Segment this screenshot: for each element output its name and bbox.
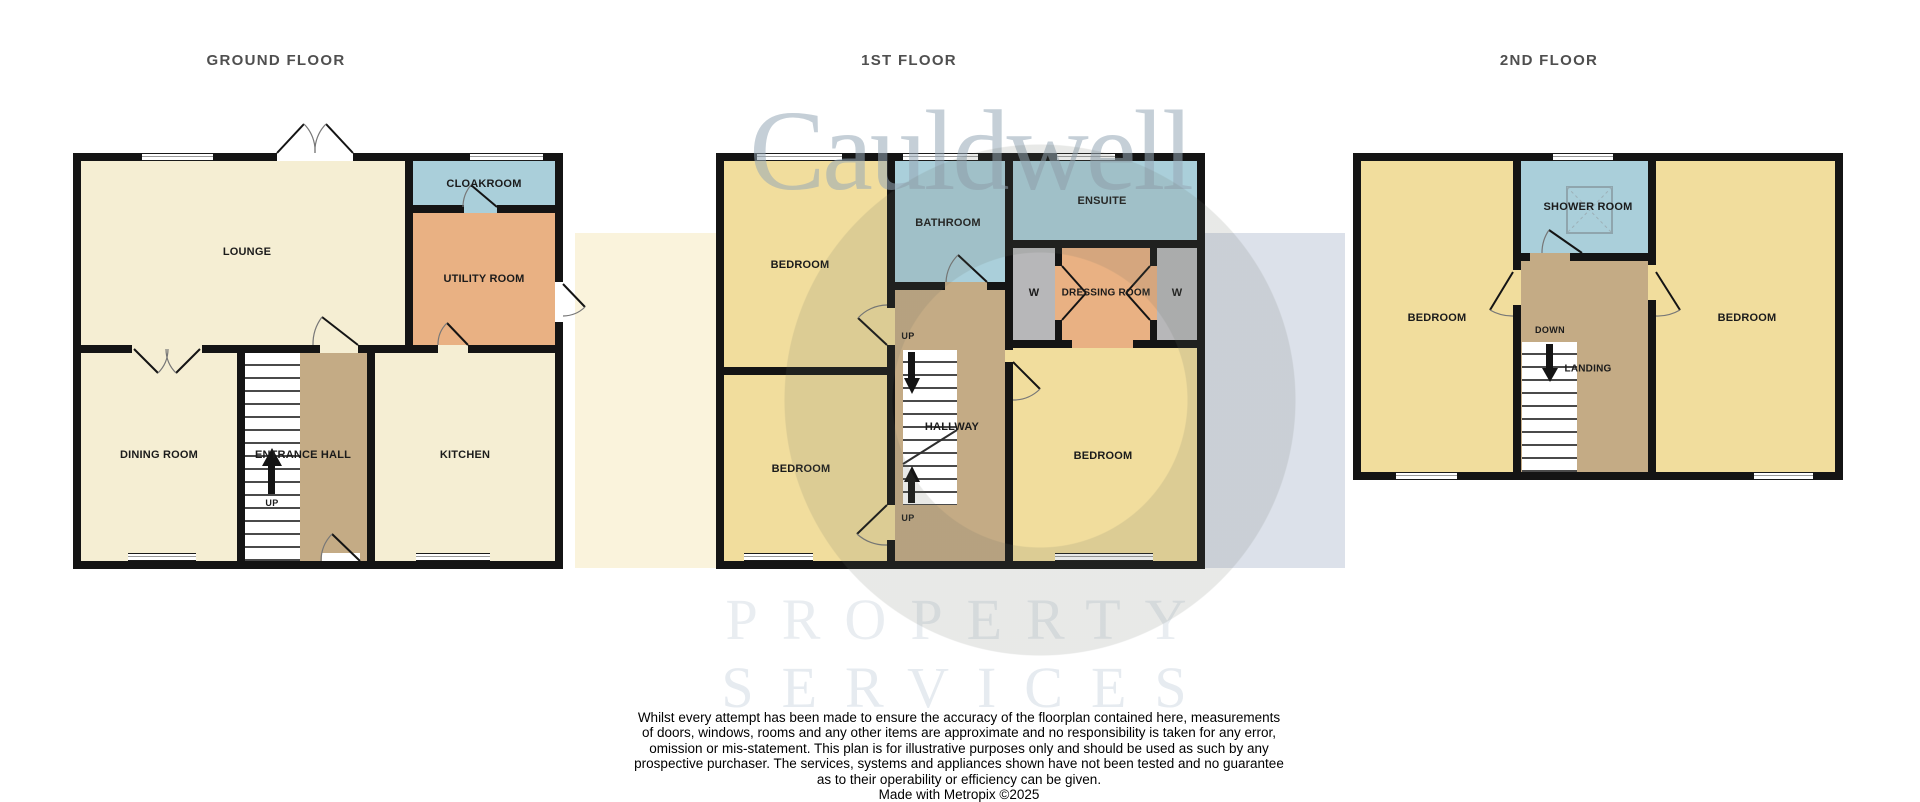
door-opening (887, 505, 895, 540)
window (416, 553, 490, 561)
room-label-bedroom: BEDROOM (1074, 450, 1133, 462)
room-label-landing: LANDING (1565, 364, 1612, 375)
room-label-bedroom: BEDROOM (771, 259, 830, 271)
window (903, 153, 978, 161)
second-floor-title: 2ND FLOOR (1500, 52, 1598, 69)
wardrobe-opening (1150, 266, 1157, 320)
front-door-opening (322, 553, 360, 561)
disclaimer-line: of doors, windows, rooms and any other i… (579, 725, 1339, 740)
french-door-opening (277, 153, 353, 161)
window (1754, 472, 1813, 480)
room-label-wardrobe: W (1172, 287, 1183, 299)
stair-label-up: UP (265, 498, 278, 508)
door-opening (1513, 270, 1521, 305)
door-opening (1072, 340, 1133, 348)
door-opening (132, 345, 202, 353)
door-opening (438, 345, 468, 353)
door-opening (945, 282, 987, 290)
room-label-bathroom: BATHROOM (915, 217, 981, 229)
room-label-bedroom: BEDROOM (1718, 312, 1777, 324)
room-label-lounge: LOUNGE (223, 246, 271, 258)
room-label-wardrobe: W (1029, 287, 1040, 299)
door-opening (1648, 265, 1656, 300)
window (757, 153, 842, 161)
room-label-bedroom: BEDROOM (772, 463, 831, 475)
window (1396, 472, 1457, 480)
disclaimer-line: as to their operability or efficiency ca… (579, 772, 1339, 787)
door-opening (1005, 350, 1013, 362)
window (128, 553, 196, 561)
window (744, 553, 813, 561)
window (1055, 553, 1153, 561)
ground-floor-title: GROUND FLOOR (207, 52, 346, 69)
room-label-shower: SHOWER ROOM (1544, 201, 1633, 213)
stair-label-down: DOWN (1535, 325, 1565, 335)
door-opening (887, 308, 895, 345)
room-label-utility: UTILITY ROOM (443, 273, 524, 285)
room-label-dining: DINING ROOM (120, 449, 198, 461)
door-opening (464, 205, 497, 213)
watermark-property-text: PROPERTY (568, 586, 1368, 653)
room-label-ensuite: ENSUITE (1077, 195, 1126, 207)
room-label-entrance-hall: ENTRANCE HALL (255, 449, 351, 461)
window (142, 153, 213, 161)
floorplan-page: { "floors": { "ground": { "title": "GROU… (0, 0, 1920, 800)
window (1057, 153, 1115, 161)
disclaimer-line: omission or mis-statement. This plan is … (579, 741, 1339, 756)
stair-label-up: UP (901, 513, 914, 523)
window (470, 153, 543, 161)
disclaimer-line: Whilst every attempt has been made to en… (579, 710, 1339, 725)
room-label-cloakroom: CLOAKROOM (446, 178, 521, 190)
room-label-kitchen: KITCHEN (440, 449, 490, 461)
stair-label-up: UP (901, 331, 914, 341)
room-label-dressing: DRESSING ROOM (1062, 288, 1151, 299)
window (1553, 153, 1613, 161)
room-label-hallway: HALLWAY (925, 421, 979, 433)
side-door-opening (555, 282, 563, 322)
door-opening (320, 345, 358, 353)
disclaimer-text: Whilst every attempt has been made to en… (579, 710, 1339, 802)
door-opening (1530, 253, 1570, 261)
first-floor-title: 1ST FLOOR (861, 52, 957, 69)
room-label-bedroom: BEDROOM (1408, 312, 1467, 324)
second-floor-stairs (1522, 342, 1577, 472)
disclaimer-line: prospective purchaser. The services, sys… (579, 756, 1339, 771)
